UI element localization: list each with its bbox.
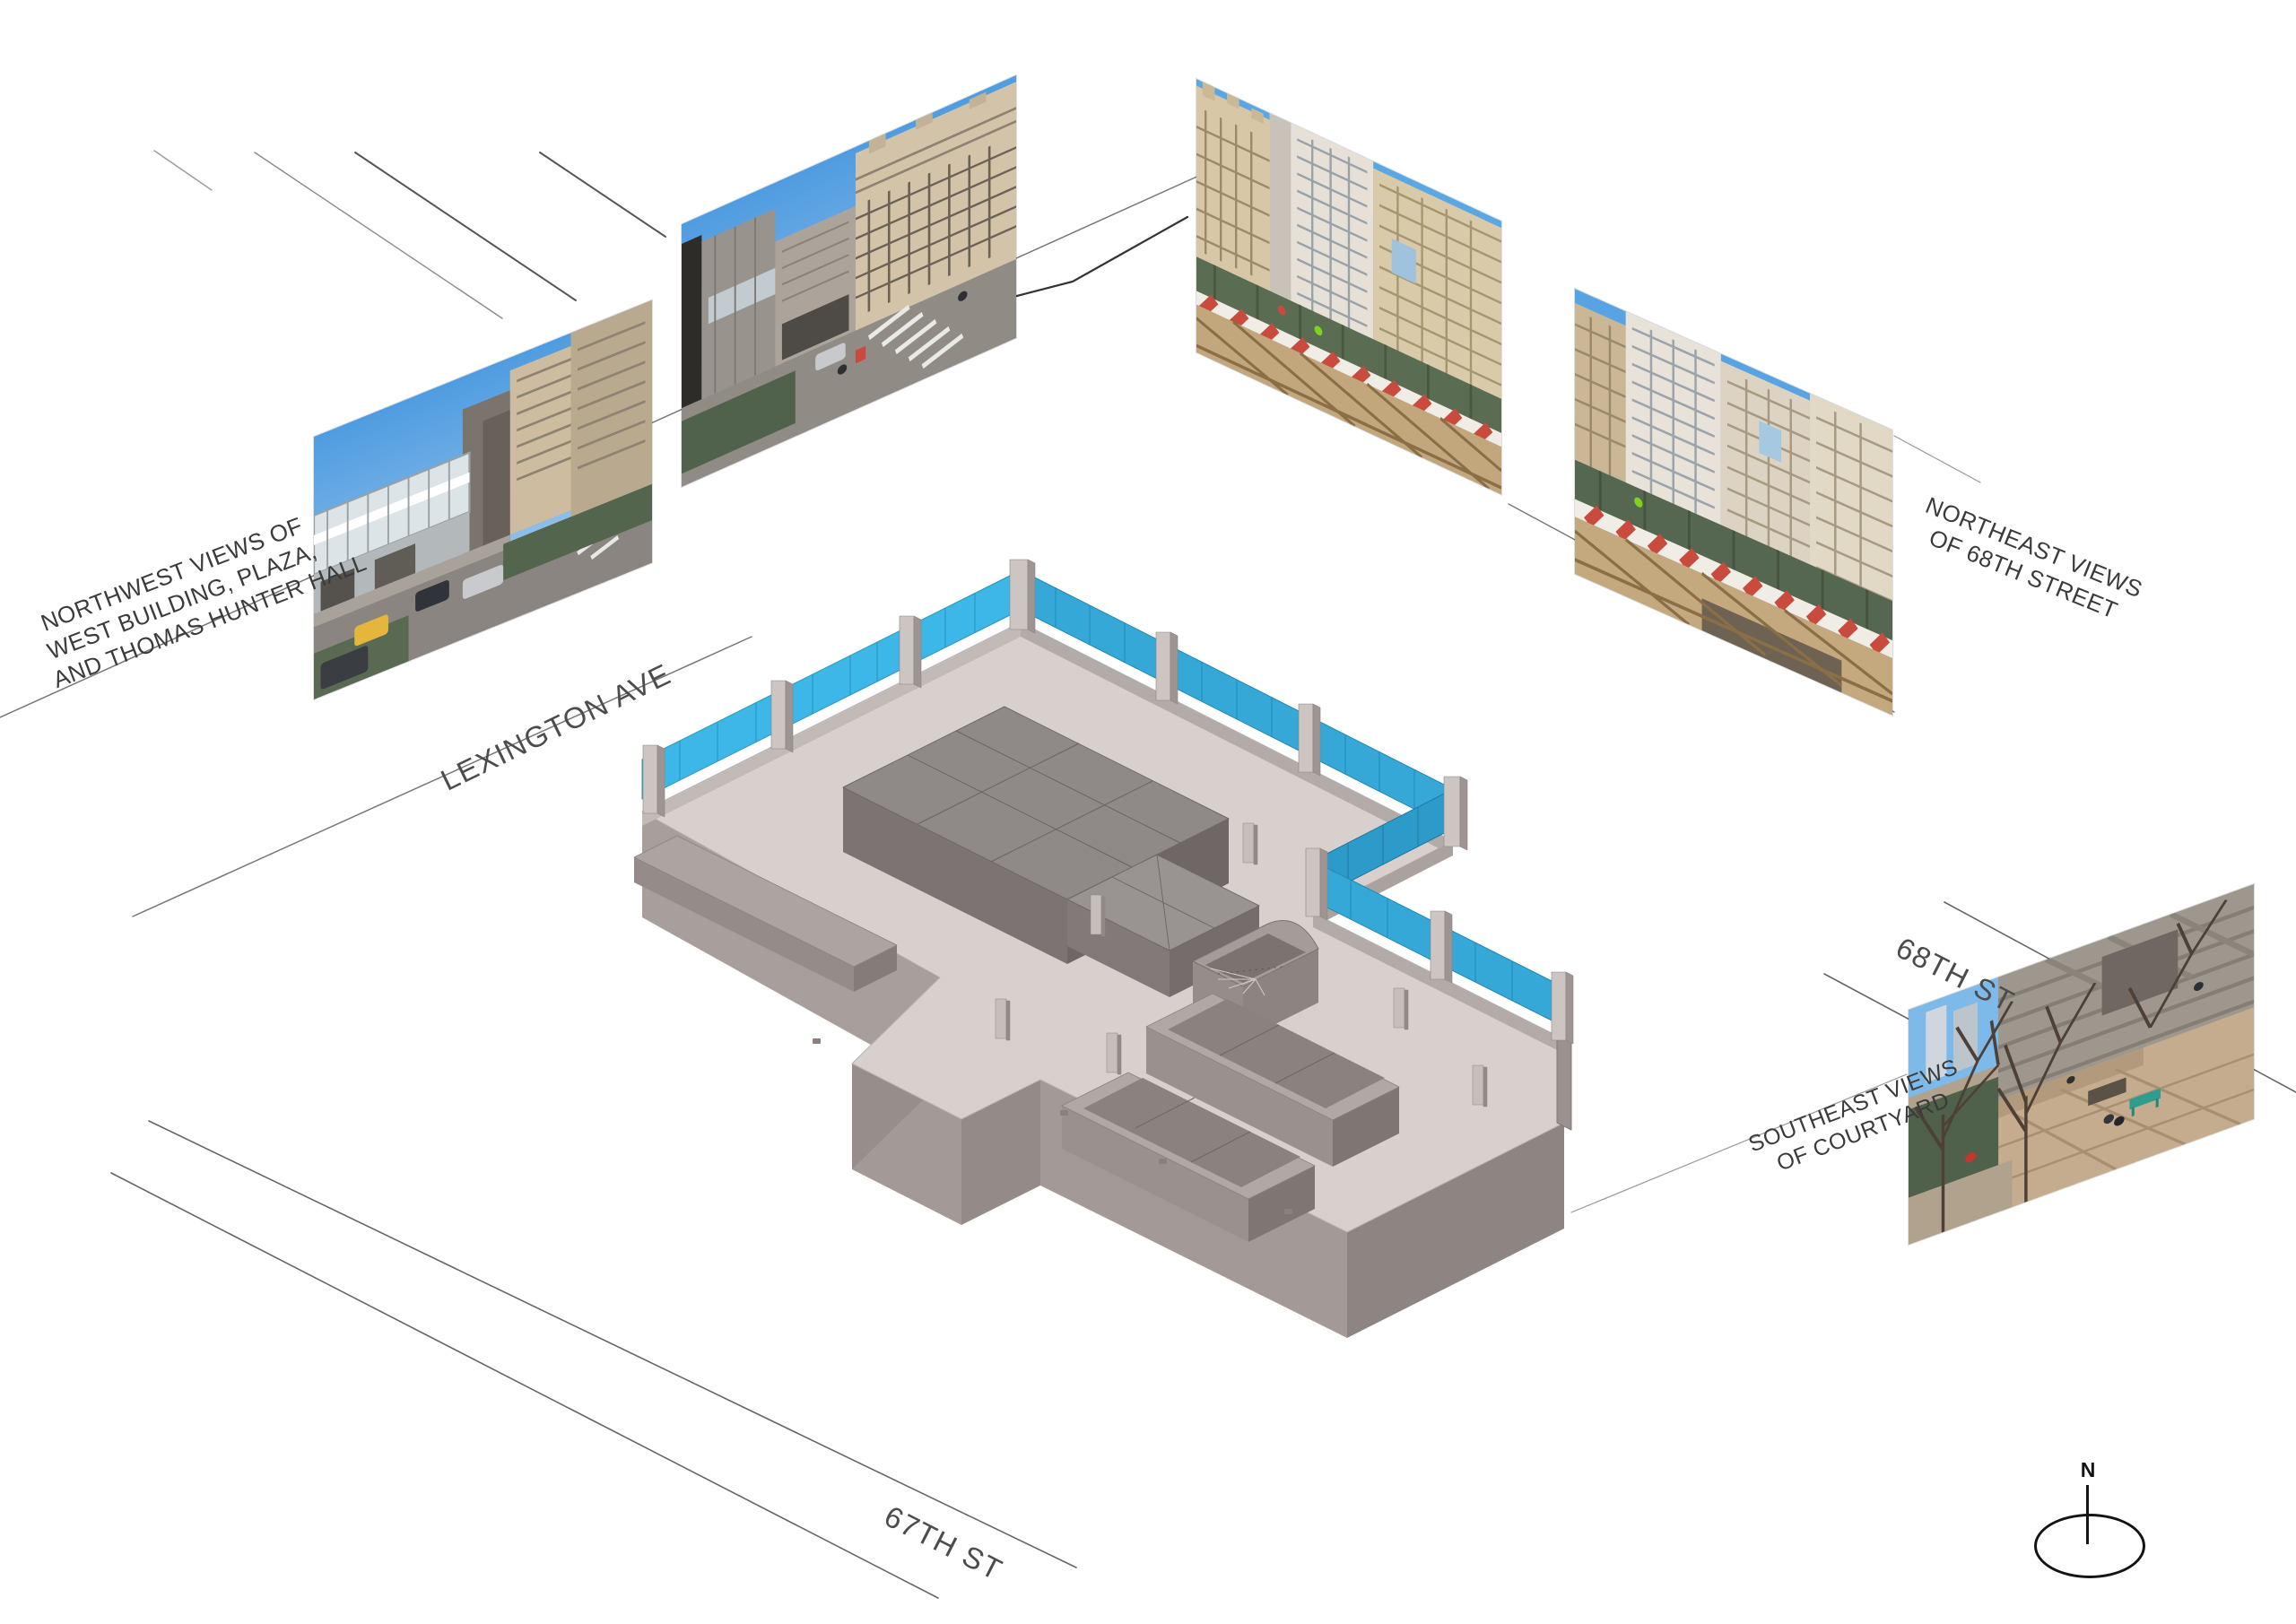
north-compass-label: N — [2066, 1458, 2110, 1482]
north-compass-icon — [2034, 1514, 2145, 1578]
north-compass-needle — [2086, 1485, 2089, 1544]
site-diagram-page: NORTHWEST VIEWS OF WEST BUILDING, PLAZA,… — [0, 0, 2296, 1624]
building-axon-model — [634, 560, 1573, 1338]
east-parapet — [1557, 1028, 1571, 1130]
axon-model-and-streets-art — [0, 0, 2296, 1624]
